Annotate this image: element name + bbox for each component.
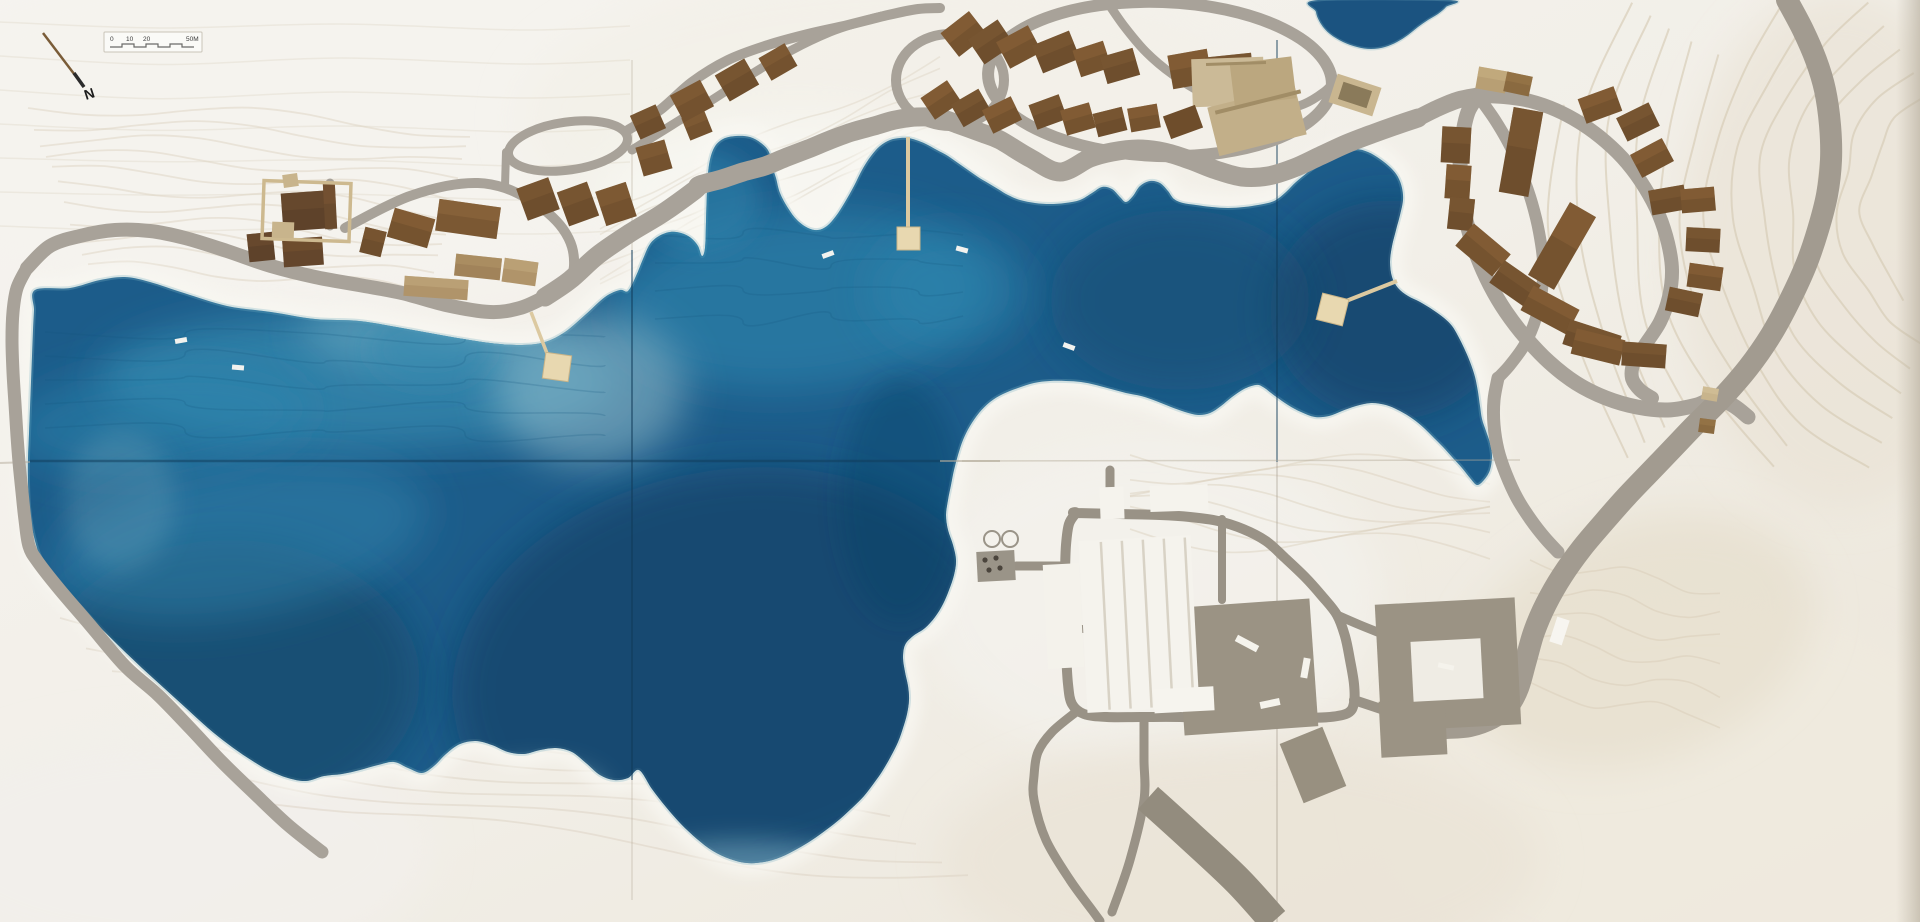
svg-text:20: 20 bbox=[143, 36, 151, 43]
svg-text:50M: 50M bbox=[186, 36, 199, 43]
svg-text:0: 0 bbox=[110, 36, 114, 43]
svg-text:10: 10 bbox=[126, 36, 134, 43]
